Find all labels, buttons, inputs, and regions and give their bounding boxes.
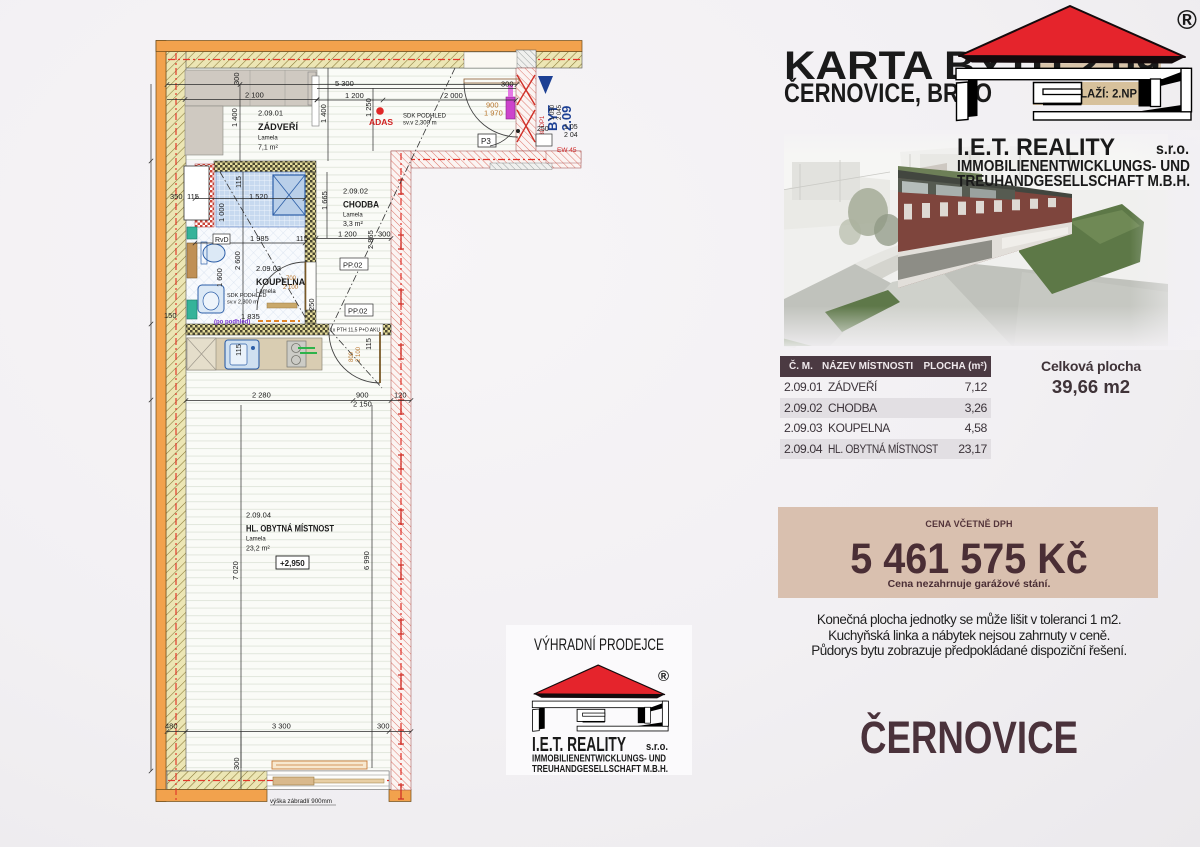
svg-text:115: 115 xyxy=(234,344,243,356)
svg-text:1 600: 1 600 xyxy=(215,268,224,287)
svg-text:150: 150 xyxy=(164,311,177,320)
svg-text:2 045: 2 045 xyxy=(557,104,563,120)
svg-text:480: 480 xyxy=(165,722,178,731)
svg-text:2 000: 2 000 xyxy=(444,91,463,100)
svg-text:3,3 m²: 3,3 m² xyxy=(343,221,364,228)
svg-text:ADAS: ADAS xyxy=(369,117,393,127)
svg-text:TREUHANDGESELLSCHAFT M.B.H.: TREUHANDGESELLSCHAFT M.B.H. xyxy=(532,764,668,775)
svg-text:VÝHRADNÍ PRODEJCE: VÝHRADNÍ PRODEJCE xyxy=(534,635,664,654)
svg-text:HL. OBYTNÁ MÍSTNOST: HL. OBYTNÁ MÍSTNOST xyxy=(246,524,334,535)
svg-text:®: ® xyxy=(658,668,669,685)
svg-text:(po podhled): (po podhled) xyxy=(214,320,250,326)
svg-text:PP.02: PP.02 xyxy=(343,261,362,270)
svg-text:2.09.04: 2.09.04 xyxy=(246,511,271,520)
svg-text:EW 45: EW 45 xyxy=(557,147,577,154)
svg-text:sv.v 2,300 m: sv.v 2,300 m xyxy=(403,121,437,127)
svg-text:TREUHANDGESELLSCHAFT M.B.H.: TREUHANDGESELLSCHAFT M.B.H. xyxy=(957,173,1190,190)
svg-text:900: 900 xyxy=(356,391,369,400)
svg-text:300: 300 xyxy=(501,80,514,89)
svg-text:1 400: 1 400 xyxy=(319,104,328,123)
svg-text:2.09.03: 2.09.03 xyxy=(256,264,281,273)
svg-text:2 865: 2 865 xyxy=(366,230,375,249)
svg-text:ZÁDVEŘÍ: ZÁDVEŘÍ xyxy=(258,121,298,133)
svg-text:Lamela: Lamela xyxy=(343,213,363,219)
svg-text:s.r.o.: s.r.o. xyxy=(646,741,668,753)
svg-text:115: 115 xyxy=(296,234,308,243)
svg-text:1x PTH 11,5 P+D AKU: 1x PTH 11,5 P+D AKU xyxy=(330,328,380,334)
svg-text:115: 115 xyxy=(187,192,199,201)
svg-text:CHODBA: CHODBA xyxy=(343,200,379,211)
svg-text:2 600: 2 600 xyxy=(233,251,242,270)
svg-text:®: ® xyxy=(1177,5,1197,35)
svg-text:IMMOBILIENENTWICKLUNGS- UND: IMMOBILIENENTWICKLUNGS- UND xyxy=(532,754,666,765)
svg-text:300: 300 xyxy=(377,722,390,731)
svg-text:1 400: 1 400 xyxy=(230,108,239,127)
svg-text:RvD: RvD xyxy=(215,237,229,244)
svg-text:SDK PODHLED: SDK PODHLED xyxy=(403,114,447,120)
svg-text:2 100: 2 100 xyxy=(245,91,264,100)
svg-text:PP.02: PP.02 xyxy=(348,307,367,316)
svg-text:2 04: 2 04 xyxy=(564,132,578,139)
svg-text:700: 700 xyxy=(286,276,297,282)
svg-text:1 250: 1 250 xyxy=(364,98,373,117)
svg-text:3 300: 3 300 xyxy=(272,722,291,731)
svg-text:800: 800 xyxy=(349,351,355,362)
svg-text:SDK PODHLED: SDK PODHLED xyxy=(227,293,266,299)
svg-text:115: 115 xyxy=(234,176,243,188)
svg-text:1 000: 1 000 xyxy=(217,203,226,222)
svg-text:7 020: 7 020 xyxy=(231,561,240,580)
svg-text:P3: P3 xyxy=(481,137,491,146)
svg-text:6 990: 6 990 xyxy=(362,551,371,570)
svg-text:250: 250 xyxy=(307,298,316,311)
svg-text:2 100: 2 100 xyxy=(356,346,362,362)
svg-text:7,1 m²: 7,1 m² xyxy=(258,145,279,152)
svg-text:350: 350 xyxy=(170,192,183,201)
svg-text:1 200: 1 200 xyxy=(345,91,364,100)
svg-text:1 985: 1 985 xyxy=(250,234,269,243)
svg-text:300: 300 xyxy=(232,757,241,770)
svg-text:I.E.T. REALITY: I.E.T. REALITY xyxy=(957,134,1115,161)
svg-text:2 280: 2 280 xyxy=(252,391,271,400)
svg-text:1 200: 1 200 xyxy=(338,230,357,239)
svg-text:5 300: 5 300 xyxy=(335,79,354,88)
svg-text:2 100: 2 100 xyxy=(283,285,299,291)
svg-text:1 05: 1 05 xyxy=(564,124,578,131)
svg-text:Lamela: Lamela xyxy=(246,537,266,543)
svg-text:2.09.02: 2.09.02 xyxy=(343,187,368,196)
svg-text:23,2 m²: 23,2 m² xyxy=(246,546,270,553)
svg-text:1 520: 1 520 xyxy=(249,192,268,201)
svg-text:+2,950: +2,950 xyxy=(280,559,305,568)
svg-text:1 665: 1 665 xyxy=(320,191,329,210)
svg-text:výška zábradlí 900mm: výška zábradlí 900mm xyxy=(270,798,332,805)
svg-text:1 050: 1 050 xyxy=(550,104,556,120)
svg-text:s.r.o.: s.r.o. xyxy=(1156,141,1189,158)
svg-text:Lamela: Lamela xyxy=(258,136,278,142)
svg-text:250: 250 xyxy=(537,126,549,133)
svg-text:300: 300 xyxy=(378,230,391,239)
svg-text:115: 115 xyxy=(364,338,373,350)
svg-text:1 970: 1 970 xyxy=(484,109,503,118)
svg-text:sv.v 2,300 m: sv.v 2,300 m xyxy=(227,300,258,306)
svg-text:2 150: 2 150 xyxy=(353,400,372,409)
svg-text:2.09.01: 2.09.01 xyxy=(258,109,283,118)
svg-text:120: 120 xyxy=(394,391,407,400)
svg-text:300: 300 xyxy=(232,72,241,85)
